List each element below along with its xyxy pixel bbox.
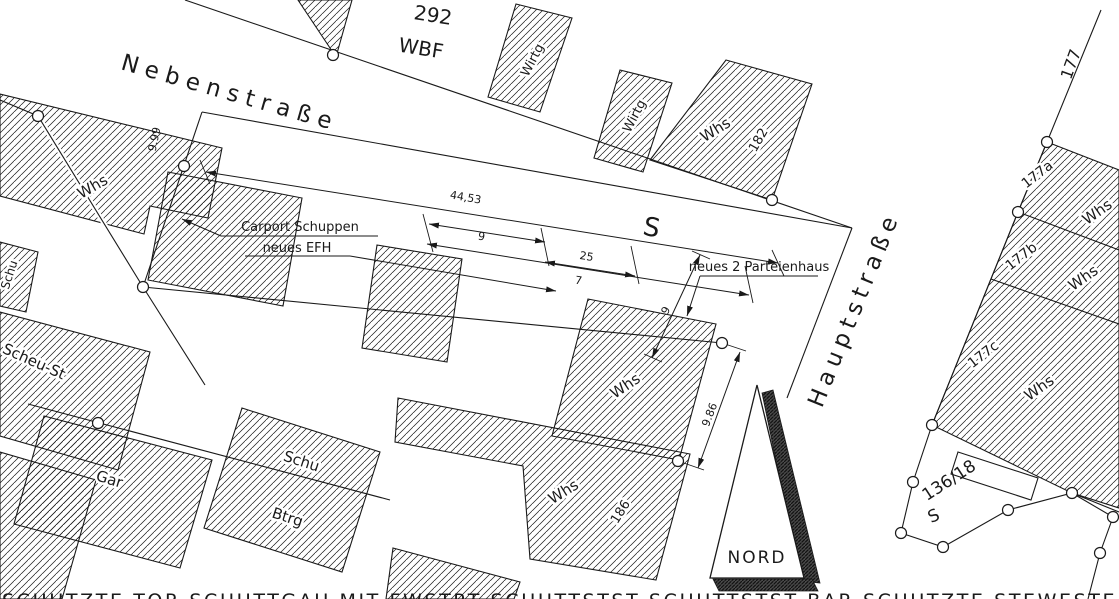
parcel-292: 292 [412, 0, 453, 30]
survey-point [328, 50, 339, 61]
survey-point [717, 338, 728, 349]
street-label-hauptstrasse: Hauptstraße [803, 208, 905, 411]
survey-point [927, 420, 938, 431]
leader-parteienhaus [687, 276, 700, 316]
survey-point [908, 477, 919, 488]
survey-point [1067, 488, 1078, 499]
survey-point [1013, 207, 1024, 218]
dim-value-44-53: 44,53 [449, 188, 482, 206]
dim-value-25: 25 [579, 249, 595, 264]
annotation-neues-efh: neues EFH [263, 241, 332, 256]
site-plan-svg: NORD Nebenstraße Hauptstraße Scheu-St 29… [0, 0, 1119, 599]
survey-point [138, 282, 149, 293]
survey-point [673, 456, 684, 467]
survey-point [179, 161, 190, 172]
annotation-carport-schuppen: Carport Schuppen [241, 220, 359, 235]
parcel-wbf: WBF [397, 33, 445, 64]
site-plan-canvas: NORD Nebenstraße Hauptstraße Scheu-St 29… [0, 0, 1119, 599]
dim-line-7 [545, 262, 635, 276]
survey-point [1042, 137, 1053, 148]
dim-value-9a: 9 [477, 230, 486, 244]
survey-point [93, 418, 104, 429]
building-mid [362, 245, 462, 362]
buildings-layer [0, 0, 1119, 599]
parcel-177: 177 [1057, 47, 1085, 82]
north-arrow: NORD [710, 385, 820, 591]
parcel-s-lower: S [925, 505, 943, 528]
boundary-136-18-b [1072, 493, 1113, 599]
dim-value-7: 7 [574, 274, 583, 288]
survey-point [938, 542, 949, 553]
survey-point [767, 195, 778, 206]
building-carport [148, 172, 302, 306]
survey-point [1003, 505, 1014, 516]
survey-point [1108, 512, 1119, 523]
street-label-nebenstrasse: Nebenstraße [118, 50, 341, 137]
bottom-clipped-text: SCHUTZTE TOR SCHUTTGAU MIT FWSTRT SCHUTT… [2, 590, 1117, 599]
parcel-s-road: S [641, 212, 663, 245]
annotation-neues-parteienhaus: neues 2 Parteienhaus [689, 260, 830, 275]
survey-point [896, 528, 907, 539]
dim-line-9a [429, 224, 545, 242]
north-arrow-label: NORD [728, 548, 787, 568]
survey-point [33, 111, 44, 122]
building-wedge-top [298, 0, 352, 57]
survey-point [1095, 548, 1106, 559]
